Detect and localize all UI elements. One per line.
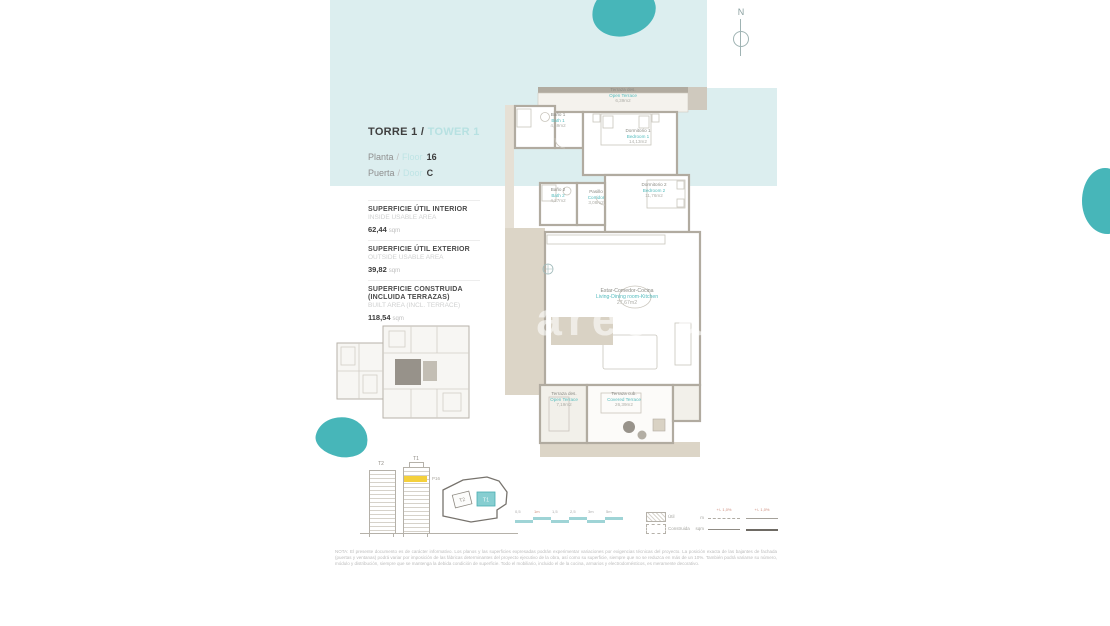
area-interior: SUPERFICIE ÚTIL INTERIOR INSIDE USABLE A… bbox=[368, 200, 480, 240]
floor-value: 16 bbox=[423, 152, 437, 162]
puerta-label: Puerta bbox=[368, 168, 395, 178]
floor16-tag: P16 bbox=[432, 476, 440, 481]
tolerance-line bbox=[746, 529, 778, 531]
ground-tick bbox=[427, 534, 428, 537]
keyplan-core bbox=[395, 359, 421, 385]
site-t1-block: T1 bbox=[477, 492, 495, 506]
scale-tick: 5m bbox=[606, 509, 612, 514]
area-label-en: BUILT AREA (INCL. TERRACE) bbox=[368, 302, 480, 310]
drain-symbol bbox=[543, 264, 553, 274]
brochure-page: N TORRE 1 / TOWER 1 Planta/Floor16 Puert… bbox=[0, 0, 1110, 626]
door-value: C bbox=[423, 168, 434, 178]
legend-label: Útil bbox=[668, 514, 675, 519]
room-label-living: Estar-Comedor-Cocina Living-Dining room-… bbox=[572, 288, 682, 307]
scale-tick: 1,5 bbox=[552, 509, 558, 514]
areas-summary: SUPERFICIE ÚTIL INTERIOR INSIDE USABLE A… bbox=[368, 200, 480, 328]
area-value: 118,54 bbox=[368, 313, 391, 322]
scale-segment bbox=[551, 520, 569, 523]
ground-line bbox=[360, 533, 518, 534]
planter bbox=[638, 431, 647, 440]
ground-tick bbox=[369, 534, 370, 537]
keyplan-shaft bbox=[423, 361, 437, 381]
tolerance-line bbox=[708, 518, 740, 519]
scale-segment bbox=[533, 517, 551, 520]
tolerance-header-2: +/- 1,0% bbox=[746, 507, 778, 512]
area-unit: sqm bbox=[391, 316, 404, 322]
t2-elevation-label: T2 bbox=[368, 461, 394, 467]
room-label-bedroom1: Dormitorio 1 Bedroom 1 14,13m2 bbox=[598, 128, 678, 145]
tolerance-row-m: m bbox=[694, 515, 704, 520]
t2-elevation bbox=[369, 470, 396, 534]
room-label-bath1: Baño 1 Bath 1 4,69m2 bbox=[536, 112, 580, 129]
ground-tick bbox=[403, 534, 404, 537]
unit-title: TORRE 1 / TOWER 1 bbox=[368, 126, 480, 138]
planter bbox=[623, 421, 635, 433]
site-boundary bbox=[443, 477, 507, 522]
floor-line: Planta/Floor16 bbox=[368, 152, 437, 162]
legend-swatch-dashed bbox=[646, 524, 666, 534]
ground-tick bbox=[393, 534, 394, 537]
area-label-es: SUPERFICIE ÚTIL INTERIOR bbox=[368, 206, 480, 214]
area-exterior: SUPERFICIE ÚTIL EXTERIOR OUTSIDE USABLE … bbox=[368, 240, 480, 280]
legend-label: Construida bbox=[668, 526, 690, 531]
area-label-es: SUPERFICIE CONSTRUIDA (INCLUIDA TERRAZAS… bbox=[368, 286, 480, 302]
legend-swatch-hatched bbox=[646, 512, 666, 522]
site-plan-key: T2 T1 bbox=[437, 474, 511, 532]
area-label-en: INSIDE USABLE AREA bbox=[368, 214, 480, 222]
room-label-bath2: Baño 2 Bath 2 4,27m2 bbox=[537, 187, 579, 204]
tolerance-row-sqm: sqm bbox=[690, 526, 704, 531]
planta-label: Planta bbox=[368, 152, 394, 162]
scale-segment bbox=[515, 520, 533, 523]
room-label-bedroom2: Dormitorio 2 Bedroom 2 11,76m2 bbox=[616, 182, 692, 199]
area-built: SUPERFICIE CONSTRUIDA (INCLUIDA TERRAZAS… bbox=[368, 280, 480, 328]
compass-icon bbox=[733, 31, 749, 47]
area-value: 39,82 bbox=[368, 265, 387, 274]
room-label-top-terrace: Terraza des. Open Terrace 6,39m2 bbox=[585, 87, 661, 104]
disclaimer-note: NOTA: El presente documento es de caráct… bbox=[335, 549, 777, 568]
svg-text:T1: T1 bbox=[483, 498, 489, 504]
torre-label: TORRE 1 / bbox=[368, 126, 424, 138]
door-label: Door bbox=[403, 168, 423, 178]
key-floorplate-plan bbox=[333, 323, 473, 423]
scale-tick: 2,5 bbox=[570, 509, 576, 514]
tolerance-line bbox=[746, 518, 778, 519]
room-label-covered-terrace: Terraza cub. Covered Terrace 26,39m2 bbox=[592, 391, 656, 408]
area-label-es: SUPERFICIE ÚTIL EXTERIOR bbox=[368, 246, 480, 254]
scale-segment bbox=[587, 520, 605, 523]
area-unit: sqm bbox=[387, 228, 400, 234]
area-unit: sqm bbox=[387, 268, 400, 274]
room-label-open-terrace: Terraza des. Open Terrace 7,19m2 bbox=[538, 391, 590, 408]
floor-label: Floor bbox=[402, 152, 423, 162]
slash-separator: / bbox=[395, 168, 404, 178]
slash-separator: / bbox=[394, 152, 403, 162]
room-label-corridor: Pasillo Corridor 3,08m2 bbox=[577, 189, 615, 206]
scale-tick: 1m bbox=[534, 509, 540, 514]
tolerance-header-1: +/- 1,0% bbox=[708, 507, 740, 512]
tower-label: TOWER 1 bbox=[428, 126, 480, 138]
scale-tick: 3m bbox=[588, 509, 594, 514]
scale-tick: 0,5 bbox=[515, 509, 521, 514]
tolerance-line bbox=[708, 529, 740, 530]
door-line: Puerta/DoorC bbox=[368, 168, 433, 178]
scale-segment bbox=[605, 517, 623, 520]
compass-north-label: N bbox=[731, 7, 751, 17]
teal-blob-right bbox=[1082, 168, 1110, 234]
scale-segment bbox=[569, 517, 587, 520]
area-label-en: OUTSIDE USABLE AREA bbox=[368, 254, 480, 262]
floor16-highlight bbox=[404, 476, 427, 482]
area-value: 62,44 bbox=[368, 225, 387, 234]
